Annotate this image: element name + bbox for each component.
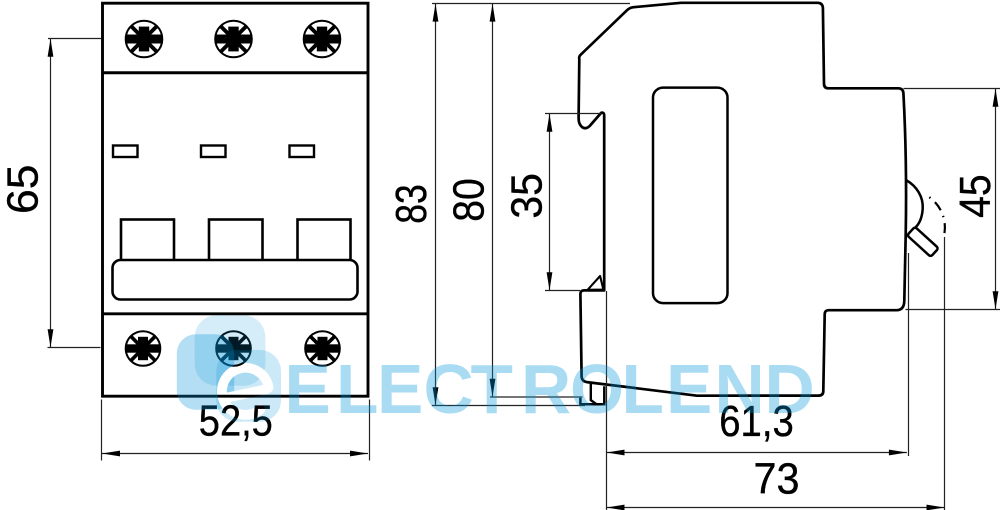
- svg-text:80: 80: [446, 178, 494, 222]
- svg-text:73: 73: [754, 456, 800, 504]
- svg-text:45: 45: [952, 174, 1000, 218]
- svg-text:83: 83: [388, 184, 436, 224]
- svg-text:35: 35: [504, 173, 552, 219]
- svg-text:ELECTROLEND: ELECTROLEND: [285, 350, 815, 428]
- svg-text:65: 65: [0, 164, 47, 214]
